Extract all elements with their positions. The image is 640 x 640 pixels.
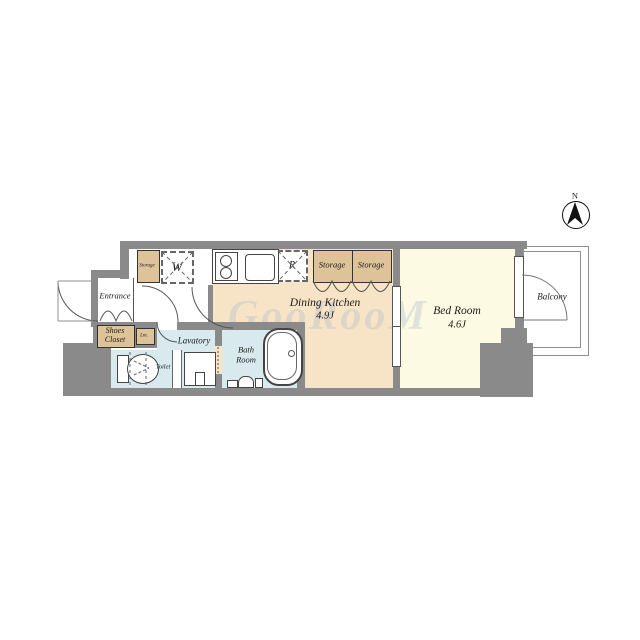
porch-lines [58,281,93,321]
bath-room-label-line2: Room [236,356,256,365]
wall-segment [480,343,533,397]
wall-segment [393,367,400,394]
wall-segment [393,249,400,286]
storage-2-label: Storage [358,261,384,270]
toilet-label: Toilet [156,365,171,372]
balcony-door-panel [514,256,524,318]
wall-segment [208,285,213,325]
storage-1-label: Storage [319,261,345,270]
entrance-hall-divider [133,278,134,322]
compass-north-label: N [572,192,578,201]
balcony-label: Balcony [537,292,567,301]
stove-burner [220,267,232,279]
bed-room-label: Bed Room [433,305,481,317]
kitchen-sink [245,254,275,281]
entrance-label: Entrance [99,292,130,301]
shoes-closet-label-line2: Closet [105,336,125,344]
bathtub-drain [288,350,295,357]
dining-kitchen-size: 4.9J [316,310,334,321]
compass-circle [562,201,590,229]
entry-storage-label: Storage [139,263,155,268]
toilet-lavatory-partition [172,350,182,390]
linen-label: Lm. [140,333,148,338]
dining-kitchen-label: Dining Kitchen [290,297,361,309]
washer-label: W [172,260,183,274]
bed-room-size: 4.6J [448,319,466,330]
bath-room-label-line1: Bath [238,346,254,355]
wall-segment [120,241,527,249]
wall-segment [215,374,222,388]
sliding-door-joint [392,326,401,327]
bath-faucet-dome [238,376,254,388]
stove-burner [220,255,232,267]
bath-fitting [255,378,263,388]
floor-plan-canvas: GooRooM [0,0,640,640]
wall-segment [91,270,98,327]
lavatory-label: Lavatory [178,336,211,345]
wall-segment [215,330,222,346]
washstand-faucet [195,372,205,386]
refrigerator-label: R [289,261,295,272]
bath-fitting [227,380,238,388]
toilet-bowl [127,354,159,384]
